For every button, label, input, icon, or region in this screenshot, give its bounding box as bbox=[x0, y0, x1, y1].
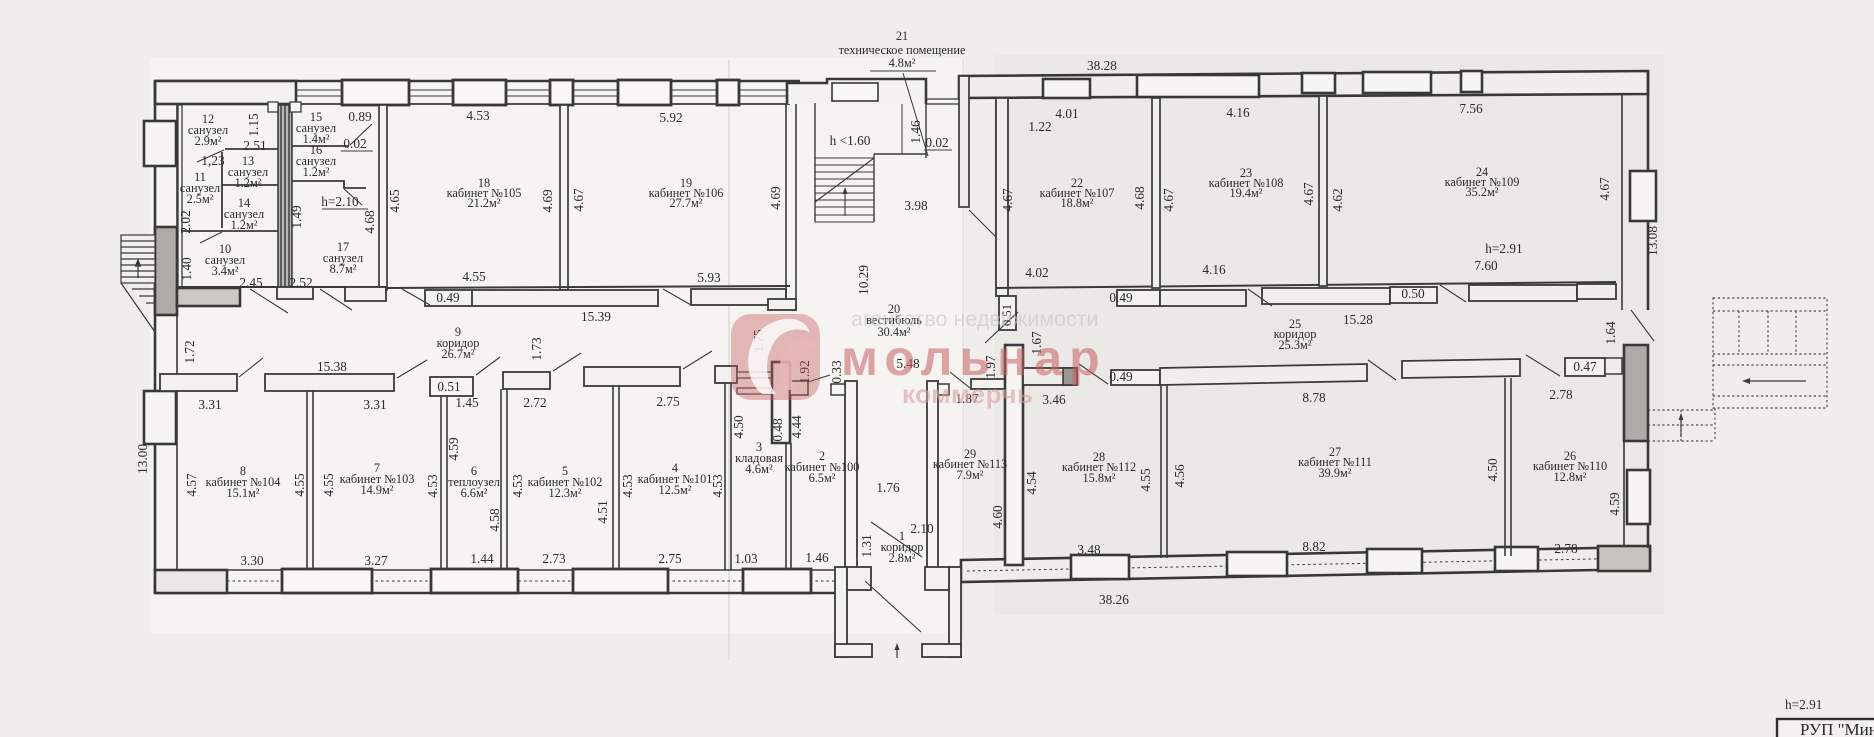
svg-text:4.65: 4.65 bbox=[387, 189, 402, 213]
svg-text:2.9м²: 2.9м² bbox=[195, 134, 222, 148]
svg-text:4.8м²: 4.8м² bbox=[889, 56, 916, 70]
svg-text:4.69: 4.69 bbox=[768, 186, 783, 210]
svg-text:1.45: 1.45 bbox=[455, 395, 479, 410]
svg-text:2.51: 2.51 bbox=[243, 138, 266, 153]
svg-text:12.3м²: 12.3м² bbox=[549, 486, 582, 500]
svg-text:2.75: 2.75 bbox=[656, 394, 680, 409]
svg-text:35.2м²: 35.2м² bbox=[1466, 185, 1499, 199]
svg-text:2.02: 2.02 bbox=[178, 210, 193, 233]
svg-text:2.8м²: 2.8м² bbox=[889, 551, 916, 565]
svg-text:4.59: 4.59 bbox=[446, 437, 461, 461]
svg-text:15.28: 15.28 bbox=[1343, 312, 1373, 327]
svg-text:коммерчь: коммерчь bbox=[902, 379, 1033, 409]
svg-text:0.51: 0.51 bbox=[437, 379, 460, 394]
svg-text:4.50: 4.50 bbox=[731, 415, 746, 439]
svg-text:8.7м²: 8.7м² bbox=[330, 262, 357, 276]
svg-text:4.55: 4.55 bbox=[1138, 468, 1153, 492]
svg-text:4.16: 4.16 bbox=[1202, 262, 1226, 277]
svg-text:7.9м²: 7.9м² bbox=[957, 468, 984, 482]
svg-text:15.8м²: 15.8м² bbox=[1083, 471, 1116, 485]
svg-text:4.55: 4.55 bbox=[292, 473, 307, 497]
svg-text:4.51: 4.51 bbox=[595, 500, 610, 523]
svg-text:7.60: 7.60 bbox=[1474, 258, 1498, 273]
svg-text:4.50: 4.50 bbox=[1485, 458, 1500, 482]
svg-text:3.46: 3.46 bbox=[1042, 392, 1066, 407]
svg-text:4.67: 4.67 bbox=[1161, 188, 1176, 212]
svg-text:3.27: 3.27 bbox=[364, 553, 388, 568]
svg-text:4.59: 4.59 bbox=[1607, 492, 1622, 516]
svg-text:1.03: 1.03 bbox=[734, 551, 758, 566]
svg-text:3.4м²: 3.4м² bbox=[212, 264, 239, 278]
svg-text:2.73: 2.73 bbox=[542, 551, 566, 566]
svg-text:8.82: 8.82 bbox=[1302, 539, 1325, 554]
svg-text:12.8м²: 12.8м² bbox=[1554, 470, 1587, 484]
svg-text:0.50: 0.50 bbox=[1401, 286, 1425, 301]
svg-text:2.5м²: 2.5м² bbox=[187, 192, 214, 206]
svg-text:15.1м²: 15.1м² bbox=[227, 486, 260, 500]
svg-text:4.62: 4.62 bbox=[1330, 188, 1345, 211]
svg-text:6.6м²: 6.6м² bbox=[461, 486, 488, 500]
svg-text:4.67: 4.67 bbox=[1301, 182, 1316, 206]
svg-text:3.98: 3.98 bbox=[904, 198, 928, 213]
svg-text:4.68: 4.68 bbox=[1132, 186, 1147, 210]
svg-text:0.02: 0.02 bbox=[343, 136, 366, 151]
svg-text:4.67: 4.67 bbox=[571, 188, 586, 212]
svg-text:2.52: 2.52 bbox=[289, 275, 312, 290]
svg-text:4.55: 4.55 bbox=[462, 269, 486, 284]
svg-text:4.6м²: 4.6м² bbox=[745, 462, 773, 476]
svg-text:h <1.60: h <1.60 bbox=[830, 133, 871, 148]
svg-text:25.3м²: 25.3м² bbox=[1279, 338, 1312, 352]
svg-text:0.89: 0.89 bbox=[348, 109, 372, 124]
svg-text:1.2м²: 1.2м² bbox=[235, 176, 262, 190]
svg-text:0.48: 0.48 bbox=[770, 418, 785, 442]
svg-text:1.15: 1.15 bbox=[246, 113, 261, 137]
svg-text:0.02: 0.02 bbox=[925, 135, 948, 150]
svg-text:2.75: 2.75 bbox=[658, 551, 682, 566]
svg-text:5.93: 5.93 bbox=[697, 270, 721, 285]
svg-text:15.39: 15.39 bbox=[581, 309, 611, 324]
svg-text:0.49: 0.49 bbox=[1109, 290, 1133, 305]
svg-text:1.40: 1.40 bbox=[179, 257, 194, 281]
svg-text:10.29: 10.29 bbox=[856, 265, 871, 295]
svg-text:4.44: 4.44 bbox=[789, 415, 804, 439]
svg-text:1.31: 1.31 bbox=[859, 534, 874, 557]
svg-text:13.00: 13.00 bbox=[135, 444, 150, 474]
svg-text:4.58: 4.58 bbox=[487, 508, 502, 532]
svg-text:3.48: 3.48 bbox=[1077, 542, 1101, 557]
svg-text:агентство недвижимости: агентство недвижимости bbox=[851, 307, 1099, 331]
svg-text:4.68: 4.68 bbox=[362, 210, 377, 234]
svg-text:8.78: 8.78 bbox=[1302, 390, 1326, 405]
svg-text:1.2м²: 1.2м² bbox=[231, 218, 258, 232]
svg-text:3.30: 3.30 bbox=[240, 553, 264, 568]
svg-text:4.55: 4.55 bbox=[321, 473, 336, 497]
svg-text:3.31: 3.31 bbox=[198, 397, 221, 412]
svg-text:13.08: 13.08 bbox=[1645, 226, 1660, 256]
svg-text:39.9м²: 39.9м² bbox=[1319, 466, 1352, 480]
svg-text:техническое помещение: техническое помещение bbox=[839, 43, 966, 57]
svg-text:4.53: 4.53 bbox=[710, 474, 725, 498]
svg-text:1.49: 1.49 bbox=[289, 205, 304, 229]
svg-text:7.56: 7.56 bbox=[1459, 101, 1483, 116]
svg-text:1.22: 1.22 bbox=[1028, 119, 1051, 134]
svg-text:4.53: 4.53 bbox=[425, 474, 440, 498]
svg-text:РУП "Мин: РУП "Мин bbox=[1800, 720, 1874, 737]
svg-text:12.5м²: 12.5м² bbox=[659, 483, 692, 497]
svg-text:0.47: 0.47 bbox=[1573, 359, 1597, 374]
svg-text:4.54: 4.54 bbox=[1024, 471, 1039, 495]
svg-text:2.78: 2.78 bbox=[1549, 387, 1573, 402]
svg-text:4.67: 4.67 bbox=[1597, 177, 1612, 201]
svg-text:2.10: 2.10 bbox=[910, 521, 934, 536]
svg-text:h=2.91: h=2.91 bbox=[1485, 241, 1522, 256]
svg-text:4.53: 4.53 bbox=[510, 474, 525, 498]
svg-text:1.64: 1.64 bbox=[1603, 321, 1618, 345]
svg-text:1.46: 1.46 bbox=[908, 120, 923, 144]
svg-text:4.56: 4.56 bbox=[1172, 464, 1187, 488]
svg-text:38.26: 38.26 bbox=[1099, 592, 1129, 607]
svg-text:14.9м²: 14.9м² bbox=[361, 483, 394, 497]
svg-text:0.49: 0.49 bbox=[436, 290, 460, 305]
svg-text:21.2м²: 21.2м² bbox=[468, 196, 501, 210]
svg-text:1.76: 1.76 bbox=[876, 480, 900, 495]
svg-text:2.78: 2.78 bbox=[1554, 541, 1578, 556]
svg-text:4.53: 4.53 bbox=[620, 474, 635, 498]
svg-text:4.57: 4.57 bbox=[184, 473, 199, 497]
svg-text:18.8м²: 18.8м² bbox=[1061, 196, 1094, 210]
svg-text:4.01: 4.01 bbox=[1055, 106, 1078, 121]
svg-text:21: 21 bbox=[896, 29, 908, 43]
svg-text:3.31: 3.31 bbox=[363, 397, 386, 412]
svg-text:4.67: 4.67 bbox=[1000, 188, 1015, 212]
svg-text:6.5м²: 6.5м² bbox=[809, 471, 836, 485]
svg-text:h=2.91: h=2.91 bbox=[1785, 697, 1822, 712]
svg-text:2.72: 2.72 bbox=[523, 395, 546, 410]
svg-text:4.02: 4.02 bbox=[1025, 265, 1048, 280]
svg-text:4.69: 4.69 bbox=[540, 189, 555, 213]
svg-text:15.38: 15.38 bbox=[317, 359, 347, 374]
svg-text:h=2.10: h=2.10 bbox=[321, 194, 359, 209]
svg-text:0.49: 0.49 bbox=[1109, 369, 1133, 384]
svg-text:19.4м²: 19.4м² bbox=[1230, 186, 1263, 200]
svg-text:1.72: 1.72 bbox=[182, 340, 197, 363]
svg-text:1.46: 1.46 bbox=[805, 550, 829, 565]
svg-text:27.7м²: 27.7м² bbox=[670, 196, 703, 210]
svg-text:5.92: 5.92 bbox=[659, 110, 682, 125]
svg-text:4.16: 4.16 bbox=[1226, 105, 1250, 120]
svg-text:26.7м²: 26.7м² bbox=[442, 347, 475, 361]
svg-text:4.53: 4.53 bbox=[466, 108, 490, 123]
svg-text:1.73: 1.73 bbox=[529, 337, 544, 361]
svg-text:мольнар: мольнар bbox=[841, 330, 1107, 386]
svg-text:1,23: 1,23 bbox=[201, 153, 225, 168]
svg-text:2.45: 2.45 bbox=[239, 275, 263, 290]
svg-text:1.44: 1.44 bbox=[470, 551, 494, 566]
svg-text:4.60: 4.60 bbox=[990, 505, 1005, 529]
svg-text:38.28: 38.28 bbox=[1087, 58, 1117, 73]
svg-text:1.2м²: 1.2м² bbox=[303, 165, 330, 179]
